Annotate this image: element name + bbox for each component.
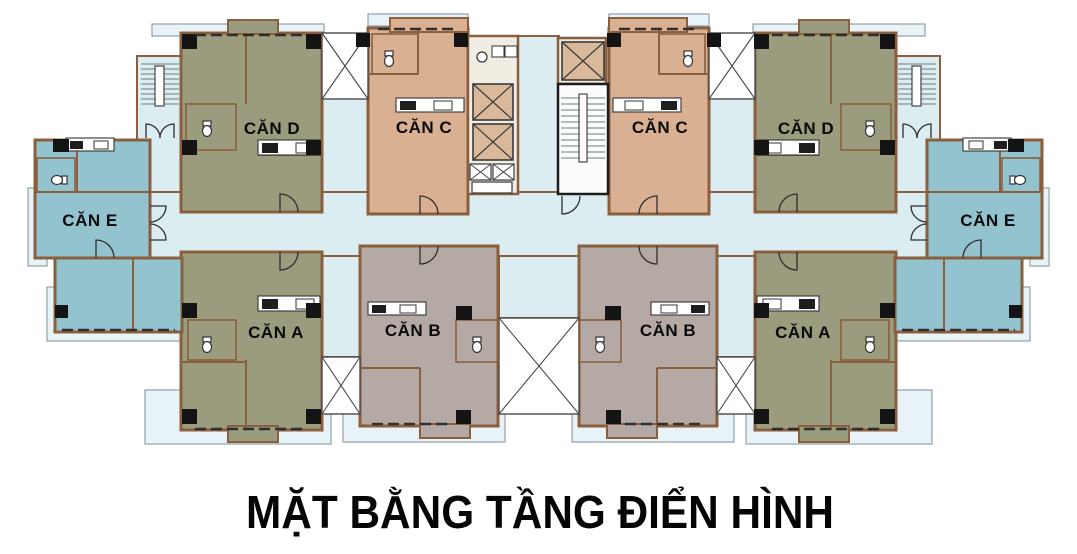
stove-icon [400, 101, 416, 110]
counter-box-icon [492, 46, 504, 57]
column [1008, 139, 1024, 152]
void-shaft-icon [717, 357, 755, 414]
unit-can-e-right-lower [895, 258, 1022, 332]
kitchen-counter-icon [963, 138, 1011, 151]
unit-can-e-left-lower [55, 258, 182, 332]
column [605, 306, 621, 320]
unit-can-d-right-balcony-bump [799, 20, 849, 34]
kitchen-counter-icon [368, 302, 426, 315]
corridor-dc-left [322, 98, 368, 192]
toilet-icon [203, 121, 212, 137]
sink-icon [94, 141, 108, 149]
corridor-cd-right [709, 98, 755, 192]
column [880, 34, 895, 49]
sink-icon [477, 52, 487, 62]
column [306, 303, 321, 318]
unit-label-can-a-left: CĂN A [248, 323, 304, 342]
sink-icon [400, 305, 416, 313]
unit-label-can-d-left: CĂN D [244, 119, 300, 138]
toilet-icon [866, 337, 875, 353]
staircase-icon [558, 84, 608, 194]
void-shaft-icon [322, 357, 360, 414]
stove-icon [691, 305, 705, 313]
column [182, 34, 197, 49]
void-shaft-icon [470, 164, 491, 180]
stove-icon [994, 141, 1007, 149]
column [306, 34, 321, 49]
elevator-shaft-icon [562, 42, 604, 80]
column [754, 140, 769, 155]
unit-can-d-left-balcony-bump [228, 20, 278, 34]
unit-label-can-e-right: CĂN E [960, 211, 1015, 230]
elevator-shaft-icon [473, 124, 513, 160]
void-shaft-icon [499, 318, 579, 414]
stove-icon [799, 299, 815, 309]
column [707, 33, 721, 47]
unit-label-can-b-left: CĂN B [385, 321, 441, 340]
stove-icon [372, 305, 386, 313]
toilet-icon [1010, 176, 1026, 185]
kitchen-counter-icon [66, 138, 114, 151]
toilet-icon [203, 337, 212, 353]
column [454, 33, 468, 47]
stove-icon [661, 101, 677, 110]
column [754, 303, 769, 318]
unit-label-can-b-right: CĂN B [640, 321, 696, 340]
toilet-icon [596, 337, 605, 353]
sink-icon [625, 101, 643, 110]
floor-plan-page: CĂN D CĂN C CĂN C CĂN D CĂN E CĂN E CĂN … [0, 0, 1077, 554]
toilet-icon [684, 51, 693, 67]
column [606, 410, 621, 424]
toilet-icon [866, 121, 875, 137]
toilet-icon [52, 176, 68, 185]
column [607, 33, 621, 47]
unit-label-can-e-left: CĂN E [62, 211, 117, 230]
elevator-shaft-icon [473, 84, 513, 120]
stove-icon [262, 299, 278, 309]
column [182, 409, 197, 424]
stove-icon [262, 143, 278, 153]
column [880, 303, 895, 318]
sink-icon [434, 101, 452, 110]
column [356, 33, 370, 47]
bottom-central-corridor [499, 256, 579, 318]
column [754, 409, 769, 424]
column [456, 410, 471, 424]
unit-can-b-right-balcony-bump [607, 424, 657, 438]
sink-icon [661, 305, 677, 313]
corridor-ab-left [322, 256, 360, 357]
kitchen-counter-icon [396, 98, 464, 112]
unit-label-can-c-left: CĂN C [396, 118, 452, 137]
unit-label-can-a-right: CĂN A [775, 323, 831, 342]
void-shaft-icon [493, 164, 514, 180]
column [1009, 305, 1022, 318]
column [55, 305, 68, 318]
floor-plan: CĂN D CĂN C CĂN C CĂN D CĂN E CĂN E CĂN … [0, 0, 1077, 554]
column [182, 303, 197, 318]
plan-title: MẶT BẰNG TẦNG ĐIỂN HÌNH [246, 486, 834, 538]
column [456, 306, 472, 320]
toilet-icon [473, 337, 482, 353]
kitchen-counter-icon [651, 302, 709, 315]
sink-icon [969, 141, 983, 149]
kitchen-counter-icon [613, 98, 681, 112]
unit-can-b-left-balcony-bump [420, 424, 470, 438]
column [182, 140, 197, 155]
column [880, 140, 895, 155]
unit-label-can-c-right: CĂN C [632, 118, 688, 137]
column [53, 139, 69, 152]
column [880, 409, 895, 424]
column [754, 34, 769, 49]
stove-icon [799, 143, 815, 153]
unit-label-can-d-right: CĂN D [778, 119, 834, 138]
column [306, 140, 321, 155]
stove-icon [70, 141, 83, 149]
duct-box [472, 182, 512, 193]
column [306, 409, 321, 424]
corridor-ba-right [717, 256, 755, 357]
counter-box-icon [505, 46, 517, 57]
central-lobby [517, 36, 559, 192]
toilet-icon [385, 51, 394, 67]
